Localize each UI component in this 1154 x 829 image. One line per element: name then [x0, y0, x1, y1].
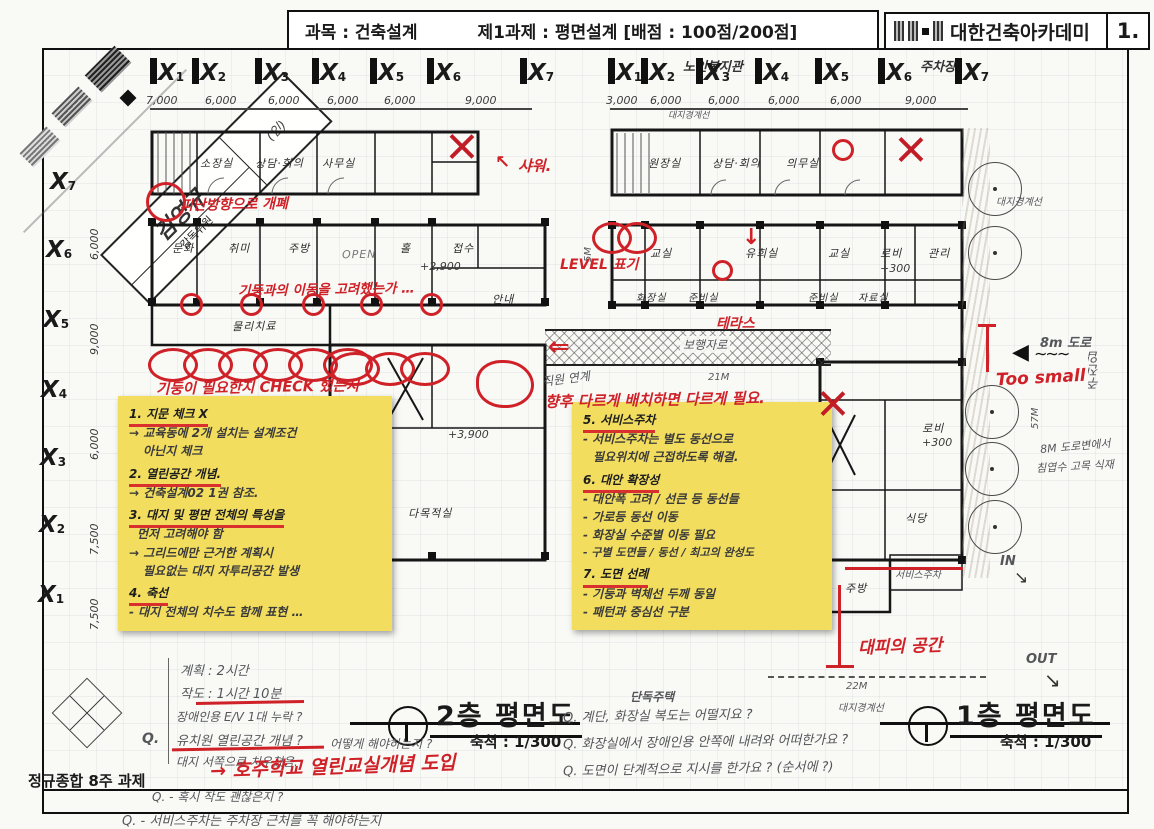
- room-label: 사무실: [322, 155, 356, 172]
- dim-label: 3,000: [606, 94, 638, 107]
- note-line: → 교육동에 2개 설치는 설계조건: [129, 424, 381, 442]
- dim-label-vertical: 6,000: [88, 205, 101, 260]
- grid-mark-x3: X3: [255, 58, 289, 84]
- dim-label: 9,000: [905, 94, 937, 107]
- column-bar-icon: [427, 58, 434, 84]
- tree-icon: [968, 500, 1022, 554]
- room-label: 의무실: [786, 155, 820, 172]
- note-line: - 대안폭 고려 / 선큰 등 동선들: [583, 490, 821, 508]
- course-subject: 과목 : 건축설계: [305, 18, 417, 43]
- room-label: 화장실: [636, 289, 667, 305]
- page-number: 1.: [1117, 19, 1140, 43]
- plan-scale-2f: 축척 : 1/300: [470, 731, 561, 752]
- red-x-mark: [449, 133, 475, 159]
- dim-label: 6,000: [268, 94, 300, 107]
- note-heading: 5. 서비스주차: [583, 411, 655, 430]
- grid-mark-x4: X4: [312, 58, 346, 84]
- room-label: 주방: [845, 580, 868, 596]
- dim-label: 6,000: [205, 94, 237, 107]
- grid-mark-y5: X5: [43, 310, 69, 331]
- column-bar-icon: [608, 58, 615, 84]
- room-label: 접수: [452, 240, 475, 256]
- dim-22m: 22M: [846, 681, 867, 692]
- column-bar-icon: [815, 58, 822, 84]
- room-label: 자료실: [858, 289, 889, 305]
- room-label: 취미: [228, 240, 251, 256]
- room-label: 상담·회의: [712, 155, 761, 172]
- out-arrow-icon: ↘: [1044, 668, 1061, 692]
- note-line: - 가로등 동선 이동: [583, 508, 821, 526]
- academy-logo-dot-icon: [922, 28, 929, 35]
- course-footer: 정규종합 8주 과제: [28, 770, 145, 791]
- grid-mark-x7r: X7: [955, 58, 989, 84]
- in-arrow-icon: ↘: [1014, 568, 1028, 588]
- note-line: → 그리드에만 근거한 계획시: [129, 544, 381, 562]
- site-boundary-label: 대지경계선: [838, 699, 884, 714]
- note-line: - 서비스주차는 별도 동선으로: [583, 430, 821, 448]
- draw-time-note: 작도 : 1시간 10분: [180, 683, 281, 702]
- grid-x-icon: X: [158, 63, 176, 84]
- note-heading: 1. 지문 체크 X: [129, 405, 208, 424]
- grid-mark-x6: X6: [427, 58, 461, 84]
- ev-note: 장애인용 E/V 1대 누락 ?: [176, 708, 302, 725]
- red-tick-serif: [978, 324, 996, 327]
- site-boundary-label: 대지경계선: [668, 108, 709, 121]
- red-bracket-foot: [826, 665, 854, 668]
- note-heading: 6. 대안 확장성: [583, 471, 659, 490]
- column-bar-icon: [520, 58, 527, 84]
- note-line: - 기둥과 벽체선 두께 동일: [583, 585, 821, 603]
- center-question-1: Q. 계단, 화장실 복도는 어떨지요 ?: [563, 703, 753, 725]
- room-label: 준비실: [808, 289, 839, 305]
- red-note-level: LEVEL 표기: [560, 254, 638, 274]
- out-label: OUT: [1026, 652, 1056, 667]
- room-label: 관리: [928, 245, 951, 261]
- red-note-refuge: 대피의 공간: [858, 631, 943, 659]
- q3-note: Q. - 서비스주차는 주차장 근처를 꼭 해야하는지: [122, 810, 381, 829]
- note-heading: 7. 도면 선례: [583, 565, 648, 584]
- dim-label-vertical: 6,000: [88, 405, 101, 460]
- column-bar-icon: [755, 58, 762, 84]
- red-x-mark: [898, 136, 924, 162]
- room-label: 문화: [172, 240, 195, 256]
- grid-mark-x1r: X1: [608, 58, 642, 84]
- page-number-box: 1.: [1106, 12, 1150, 50]
- room-label: 주방: [288, 240, 311, 256]
- red-arrow-nw-icon: ↖: [495, 152, 510, 173]
- room-label: OPEN: [342, 248, 377, 262]
- note-line: - 패턴과 중심선 구분: [583, 603, 821, 621]
- academy-logo-icon: [894, 21, 904, 41]
- room-label: 다목적실: [408, 505, 453, 522]
- question-mark: Q.: [142, 731, 159, 747]
- datum-symbol: [908, 706, 948, 746]
- note-line: 필요없는 대지 자투리공간 발생: [129, 562, 381, 580]
- room-label: 물리치료: [232, 318, 277, 335]
- dim-57m: 57M: [1030, 385, 1041, 429]
- room-label: 상담·회의: [255, 155, 304, 172]
- note-line: 아닌지 체크: [129, 442, 381, 460]
- dim-label: 7,000: [146, 94, 178, 107]
- dim-label: 6,000: [768, 94, 800, 107]
- red-bracket-vertical: [838, 585, 841, 667]
- column-bar-icon: [878, 58, 885, 84]
- dim-label: 6,000: [830, 94, 862, 107]
- dim-label: 6,000: [327, 94, 359, 107]
- column-bar-icon: [312, 58, 319, 84]
- scanned-drawing-sheet: 과목 : 건축설계 제1과제 : 평면설계 [배점 : 100점/200점] 대…: [0, 0, 1154, 829]
- red-note-shower: 샤워.: [518, 155, 551, 176]
- room-label: 안내: [492, 291, 515, 307]
- academy-logo-icon: [908, 21, 918, 41]
- tree-icon: [968, 226, 1022, 280]
- corridor-label: 보행자로: [680, 336, 730, 353]
- red-double-arrow-icon: ⇐: [548, 332, 570, 362]
- red-bracket-horizontal: [845, 567, 963, 570]
- red-ring-small: [712, 260, 733, 281]
- room-label: 교실: [828, 245, 851, 261]
- column-bar-icon: [370, 58, 377, 84]
- level-label: +2,900: [420, 260, 461, 273]
- tree-icon: [968, 162, 1022, 216]
- task-title: 제1과제 : 평면설계 [배점 : 100점/200점]: [477, 18, 797, 43]
- q2-note: Q. - 혹시 작도 괜찮은지 ?: [152, 788, 283, 805]
- red-note-future: 향후 다르게 배치하면 다르게 필요.: [545, 387, 765, 412]
- red-note-evac: 피난방향으로 개폐: [180, 193, 288, 215]
- room-label: 식당: [905, 510, 928, 526]
- red-note-column-check: 기둥이 필요한지 CHECK 했는지: [156, 374, 359, 399]
- column-bar-icon: [641, 58, 648, 84]
- room-label: 로비: [880, 245, 903, 261]
- academy-logo-icon: [933, 21, 943, 41]
- note-line: 먼저 고려해야 함: [129, 525, 381, 543]
- parking-label: 주차장: [920, 56, 956, 75]
- header-title-box: 과목 : 건축설계 제1과제 : 평면설계 [배점 : 100점/200점]: [287, 10, 879, 50]
- note-line: 필요위치에 근접하도록 해결.: [583, 448, 821, 466]
- academy-name: 대한건축아카데미: [950, 18, 1090, 45]
- corridor-length: 21M: [708, 372, 729, 383]
- column-bar-icon: [696, 58, 703, 84]
- grid-mark-x7: X7: [520, 58, 554, 84]
- sticky-note-right: 5. 서비스주차 - 서비스주차는 별도 동선으로 필요위치에 근접하도록 해결…: [572, 402, 832, 630]
- grid-mark-x5r: X5: [815, 58, 849, 84]
- note-line: - 대지 전체의 치수도 함께 표현 …: [129, 603, 381, 621]
- room-label: 준비실: [688, 289, 719, 305]
- note-heading: 4. 축선: [129, 584, 168, 603]
- in-label: IN: [1000, 554, 1016, 569]
- academy-box: 대한건축아카데미: [884, 12, 1110, 50]
- grid-mark-x6r: X6: [878, 58, 912, 84]
- level-label: +300: [880, 262, 910, 275]
- note-line: → 건축설계02 1권 참조.: [129, 484, 381, 502]
- room-label: 로비: [922, 420, 945, 436]
- red-tick-line: [986, 324, 989, 372]
- tree-icon: [965, 442, 1019, 496]
- dim-label: 9,000: [465, 94, 497, 107]
- site-boundary-dashed: [768, 676, 986, 678]
- plan-scale-1f: 축척 : 1/300: [1000, 731, 1091, 752]
- red-arrow-down-icon: ↓: [742, 225, 760, 250]
- dim-label-vertical: 7,500: [88, 500, 101, 555]
- room-label: 소장실: [200, 155, 234, 172]
- dim-label-vertical: 9,000: [88, 300, 101, 355]
- grid-mark-x2: X2: [192, 58, 226, 84]
- column-bar-icon: [255, 58, 262, 84]
- dim-label-vertical: 7,500: [88, 575, 101, 630]
- grid-mark-y4: X4: [41, 380, 67, 401]
- grid-mark-x3r: X3: [696, 58, 730, 84]
- red-x-mark: [820, 390, 846, 416]
- level-label: +300: [922, 436, 952, 449]
- note-line: - 화장실 수준별 이동 필요: [583, 526, 821, 544]
- grid-mark-x4r: X4: [755, 58, 789, 84]
- grid-mark-y7: X7: [50, 172, 76, 193]
- plan-time-note: 계획 : 2시간: [180, 660, 249, 679]
- red-note-column-question: 기둥과의 이동을 고려했는가 …: [238, 276, 415, 299]
- dim-label: 6,000: [650, 94, 682, 107]
- tree-icon: [965, 385, 1019, 439]
- red-cloud: [592, 222, 642, 258]
- dimension-line: [610, 108, 968, 110]
- red-blob: [476, 360, 534, 408]
- grid-mark-x2r: X2: [641, 58, 675, 84]
- grid-mark-y1: X1: [38, 585, 64, 606]
- sticky-note-left: 1. 지문 체크 X → 교육동에 2개 설치는 설계조건 아닌지 체크 2. …: [118, 396, 392, 631]
- grid-mark-y3: X3: [40, 448, 66, 469]
- red-ring-column: [180, 293, 203, 316]
- single-house-label: 단독주택: [630, 688, 674, 705]
- red-ring-column: [420, 293, 443, 316]
- red-ring-small: [832, 139, 854, 161]
- note-heading: 3. 대지 및 평면 전체의 특성을: [129, 506, 284, 525]
- grid-mark-x1: X1: [150, 58, 184, 84]
- room-label: 원장실: [648, 155, 682, 172]
- road-squiggle-icon: ∼∼∼: [1034, 344, 1068, 363]
- main-entry-label: 주진입: [1086, 330, 1105, 390]
- dim-label: 6,000: [708, 94, 740, 107]
- grid-mark-y2: X2: [39, 515, 65, 536]
- dimension-line: [150, 108, 532, 110]
- column-bar-icon: [955, 58, 962, 84]
- grid-mark-x5: X5: [370, 58, 404, 84]
- column-bar-icon: [192, 58, 199, 84]
- note-line: - 구별 도면들 / 동선 / 최고의 완성도: [583, 545, 821, 562]
- column-bar-icon: [150, 58, 157, 84]
- grid-mark-y6: X6: [46, 240, 72, 261]
- note-bracket-line: [168, 658, 169, 764]
- road-arrow-icon: ◀: [1012, 340, 1029, 365]
- dim-label: 6,000: [384, 94, 416, 107]
- room-label: 홀: [400, 240, 411, 256]
- level-label: +3,900: [448, 428, 489, 441]
- note-heading: 2. 열린공간 개념.: [129, 465, 221, 484]
- red-note-terrace: 테라스: [716, 313, 755, 333]
